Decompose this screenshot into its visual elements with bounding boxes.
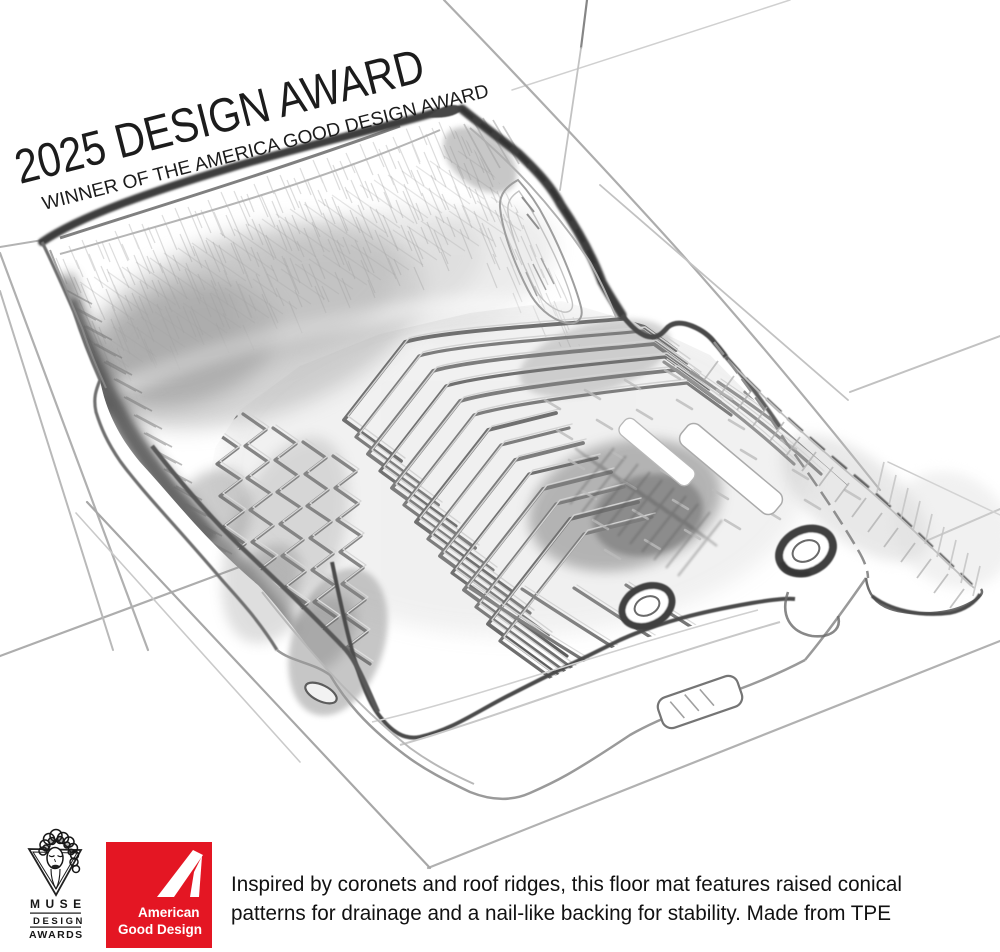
svg-text:patterns for drainage and a na: patterns for drainage and a nail-like ba… <box>231 901 891 925</box>
svg-text:DESIGN: DESIGN <box>33 916 85 927</box>
svg-text:Inspired by coronets and roof: Inspired by coronets and roof ridges, th… <box>231 872 902 896</box>
svg-text:American: American <box>138 905 200 920</box>
svg-text:MUSE: MUSE <box>30 897 87 911</box>
svg-text:AWARDS: AWARDS <box>29 929 84 941</box>
svg-text:Good Design: Good Design <box>118 922 202 937</box>
